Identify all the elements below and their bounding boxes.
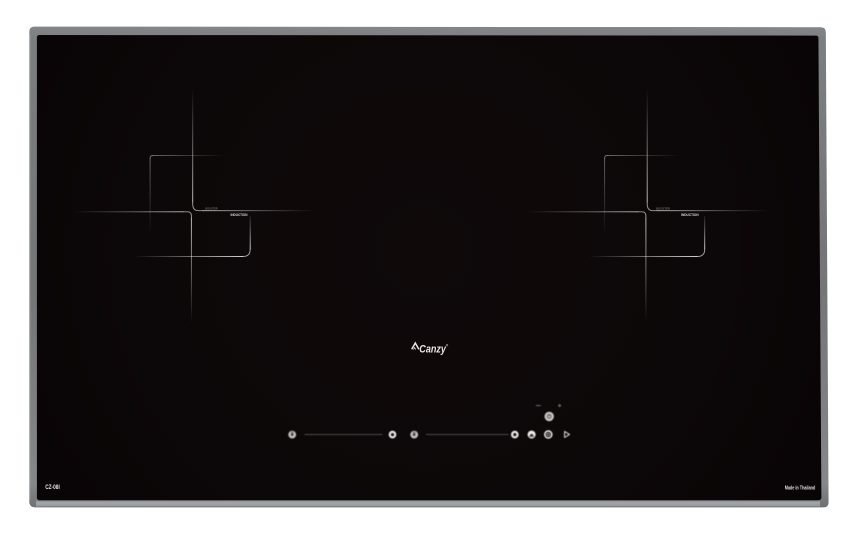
- svg-text:Made in Thailand: Made in Thailand: [785, 485, 816, 491]
- svg-text:Canzy: Canzy: [419, 344, 446, 356]
- svg-text:BOOSTER: BOOSTER: [656, 207, 671, 211]
- svg-text:INDUCTION: INDUCTION: [681, 212, 699, 217]
- svg-text:INDUCTION: INDUCTION: [231, 212, 248, 217]
- svg-text:CZ-08I: CZ-08I: [45, 485, 60, 491]
- svg-text:BOOSTER: BOOSTER: [205, 207, 218, 211]
